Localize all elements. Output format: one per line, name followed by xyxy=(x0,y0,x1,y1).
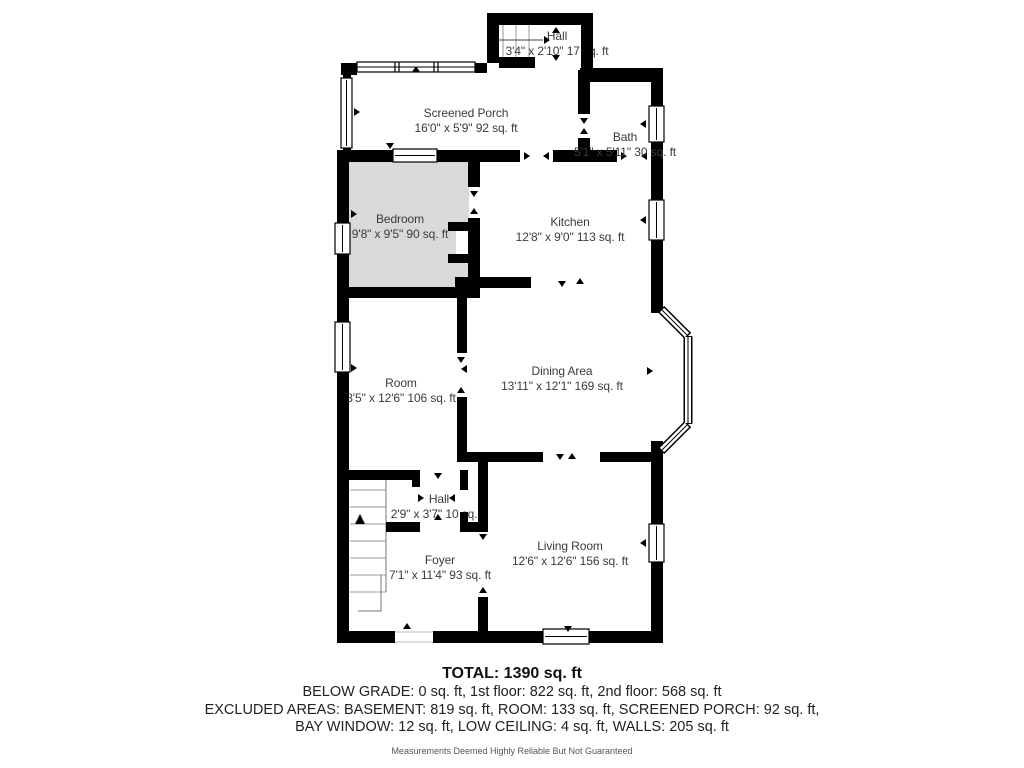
kitchen-window xyxy=(649,200,664,240)
floor-plan-page: Hall 3'4" x 2'10" 17 sq. ft Screened Por… xyxy=(0,0,1024,768)
summary-excluded-2: BAY WINDOW: 12 sq. ft, LOW CEILING: 4 sq… xyxy=(0,719,1024,737)
bath-window xyxy=(649,106,664,142)
room-left-window xyxy=(335,322,350,372)
summary-total: TOTAL: 1390 sq. ft xyxy=(0,664,1024,684)
living-room-bottom-window xyxy=(543,629,589,644)
door-and-dimension-arrows xyxy=(351,27,653,632)
walls xyxy=(337,13,663,643)
summary-disclaimer: Measurements Deemed Highly Reliable But … xyxy=(0,746,1024,756)
floor-plan-walls-layer xyxy=(0,0,1024,768)
summary-floors: BELOW GRADE: 0 sq. ft, 1st floor: 822 sq… xyxy=(0,684,1024,702)
summary-excluded-1: EXCLUDED AREAS: BASEMENT: 819 sq. ft, RO… xyxy=(0,702,1024,720)
area-summary: TOTAL: 1390 sq. ft BELOW GRADE: 0 sq. ft… xyxy=(0,664,1024,756)
bedroom-left-window xyxy=(335,223,350,254)
porch-bedroom-window xyxy=(393,149,437,162)
windows xyxy=(335,62,664,644)
bay-window xyxy=(661,309,688,451)
living-room-right-window xyxy=(649,524,664,562)
porch-left-window xyxy=(341,78,352,148)
front-door-opening xyxy=(395,632,433,642)
stairs-up-arrow xyxy=(355,514,365,524)
